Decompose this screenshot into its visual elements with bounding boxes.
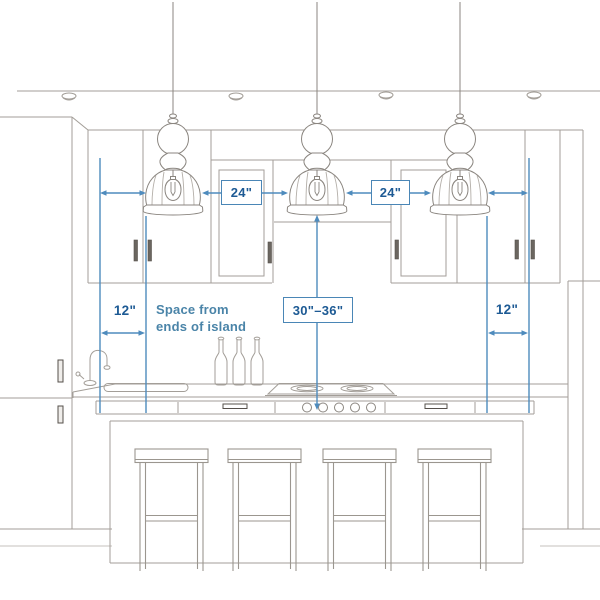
island-spacing-note-line2: ends of island — [156, 319, 246, 336]
left-wall — [0, 117, 112, 546]
island-counter — [73, 384, 568, 563]
dim-label-24in-right: 24" — [371, 180, 410, 205]
island-drawer-handle — [223, 404, 247, 409]
dim-label-24in-left: 24" — [221, 180, 262, 205]
dim-label-12in-left: 12" — [106, 303, 144, 318]
pendant-light-center — [287, 2, 347, 215]
bottles — [215, 337, 263, 385]
island-drawer-handle — [425, 404, 447, 409]
cooktop — [265, 384, 397, 396]
sink-faucet — [76, 350, 188, 391]
island-spacing-note: Space from ends of island — [156, 302, 246, 335]
right-wall — [522, 130, 600, 546]
pendant-light-left — [143, 2, 203, 215]
island-spacing-note-line1: Space from — [156, 302, 246, 319]
cabinet-handles — [134, 240, 535, 263]
recessed-lights — [62, 92, 541, 100]
dim-label-30-36in: 30"–36" — [283, 297, 353, 323]
dim-label-12in-right: 12" — [488, 302, 526, 317]
pendant-spacing-diagram: 24" 24" 30"–36" 12" 12" Space from ends … — [0, 0, 600, 600]
pendant-light-right — [430, 2, 490, 215]
bar-stools — [135, 449, 491, 571]
range-knobs — [303, 403, 376, 412]
island-base — [110, 421, 523, 563]
